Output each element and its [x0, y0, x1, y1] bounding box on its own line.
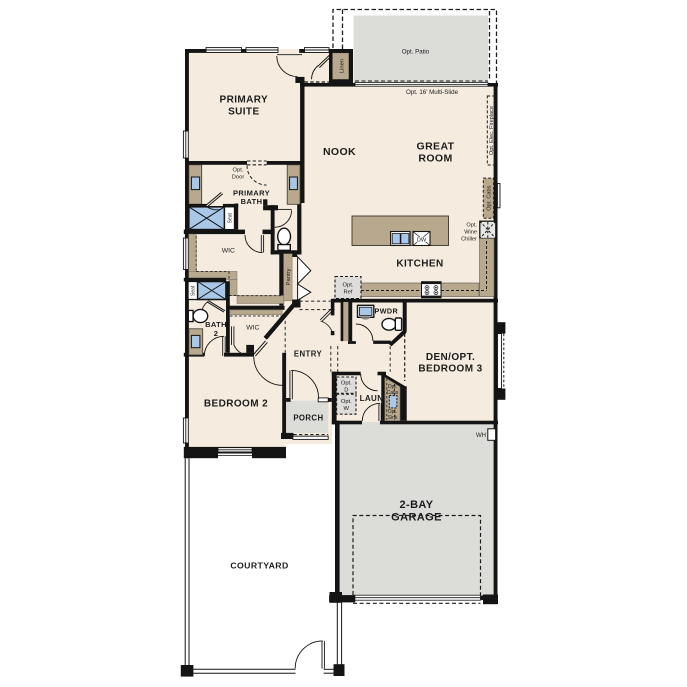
svg-text:Sink: Sink [388, 415, 398, 421]
svg-text:Opt. Cabs: Opt. Cabs [487, 185, 493, 210]
svg-text:WH: WH [476, 433, 486, 439]
svg-text:BEDROOM 3: BEDROOM 3 [418, 364, 482, 375]
svg-text:2: 2 [214, 329, 219, 338]
svg-text:Opt.: Opt. [343, 283, 354, 289]
svg-text:W: W [344, 406, 350, 412]
svg-text:Linen: Linen [340, 59, 346, 73]
svg-text:DW: DW [417, 238, 427, 244]
svg-text:Chiller: Chiller [461, 237, 477, 243]
svg-text:Pantry: Pantry [286, 269, 292, 286]
svg-text:WIC: WIC [246, 325, 259, 332]
svg-text:DEN/OPT.: DEN/OPT. [426, 352, 475, 363]
svg-text:Opt. 16' Multi-Slide: Opt. 16' Multi-Slide [406, 89, 459, 96]
svg-text:PRIMARY: PRIMARY [220, 95, 269, 106]
svg-text:Seat: Seat [227, 212, 233, 223]
svg-text:ENTRY: ENTRY [294, 350, 323, 359]
svg-text:Opt.: Opt. [341, 399, 352, 405]
svg-text:Door: Door [232, 175, 245, 181]
svg-text:PWDR: PWDR [375, 307, 399, 316]
svg-text:PORCH: PORCH [293, 414, 323, 423]
svg-text:Wine: Wine [464, 230, 477, 236]
svg-text:BATH: BATH [241, 197, 263, 206]
svg-text:Ref: Ref [343, 290, 352, 296]
svg-text:Opt.: Opt. [233, 168, 244, 174]
svg-text:D: D [344, 388, 348, 394]
svg-text:BEDROOM 2: BEDROOM 2 [204, 399, 268, 410]
svg-text:NOOK: NOOK [323, 146, 356, 158]
svg-text:GREAT: GREAT [417, 141, 455, 153]
svg-text:LAUN: LAUN [360, 394, 384, 403]
svg-text:SUITE: SUITE [228, 107, 259, 118]
svg-text:Opt. Elec. Fireplace: Opt. Elec. Fireplace [489, 106, 495, 155]
svg-text:Opt. Patio: Opt. Patio [402, 49, 430, 56]
svg-text:Seat: Seat [191, 285, 197, 296]
svg-text:COURTYARD: COURTYARD [230, 560, 288, 570]
svg-text:ROOM: ROOM [418, 153, 452, 165]
svg-text:2-BAY: 2-BAY [400, 499, 434, 511]
svg-text:BATH: BATH [205, 320, 227, 329]
svg-text:GARAGE: GARAGE [391, 512, 442, 524]
svg-text:KITCHEN: KITCHEN [396, 259, 443, 270]
svg-text:Opt.: Opt. [466, 223, 477, 229]
svg-text:WIC: WIC [222, 248, 235, 255]
svg-text:Opt.: Opt. [341, 381, 352, 387]
